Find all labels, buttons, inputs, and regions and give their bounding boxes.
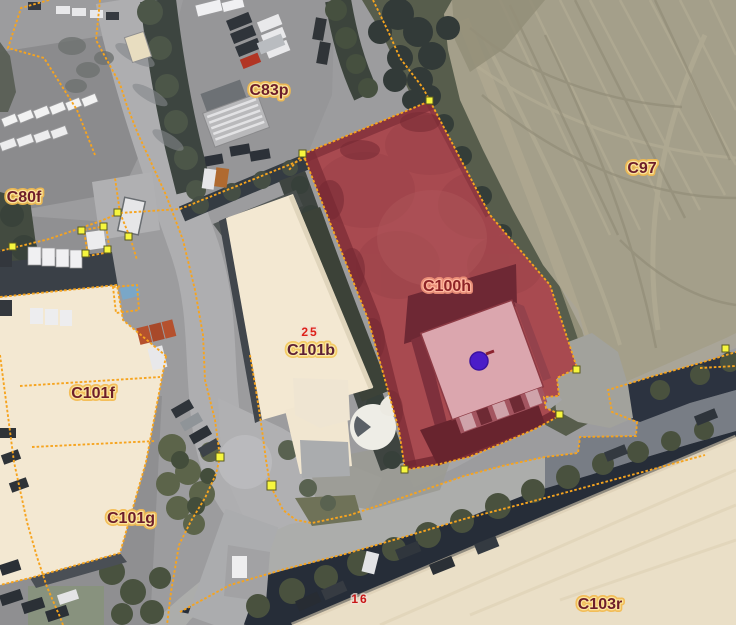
svg-text:C101b: C101b — [287, 342, 335, 359]
svg-text:C103r: C103r — [578, 596, 622, 613]
svg-text:C97: C97 — [627, 160, 656, 177]
svg-text:C100h: C100h — [423, 278, 471, 295]
svg-text:C101g: C101g — [107, 510, 155, 527]
svg-text:C80f: C80f — [7, 189, 42, 206]
svg-text:16: 16 — [351, 592, 368, 606]
svg-text:25: 25 — [301, 325, 318, 339]
svg-text:C83p: C83p — [249, 82, 288, 99]
svg-text:C101f: C101f — [71, 385, 115, 402]
